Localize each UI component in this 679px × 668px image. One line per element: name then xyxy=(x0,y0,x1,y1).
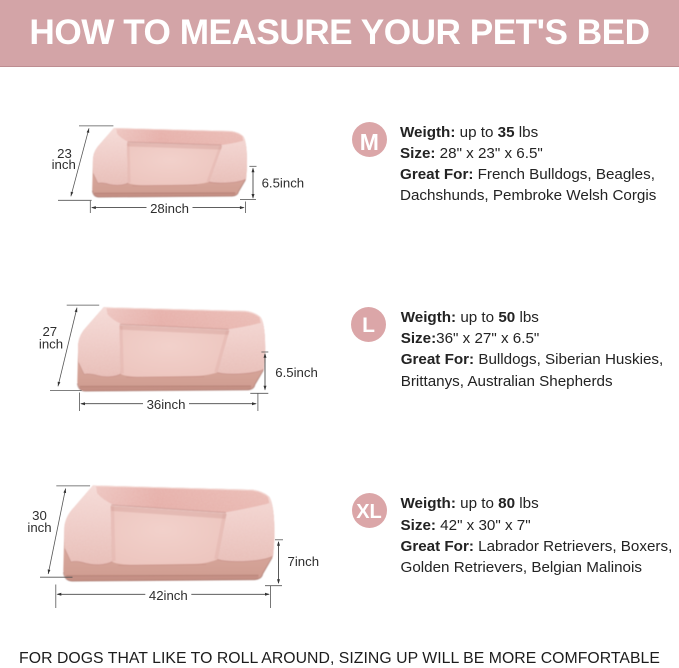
svg-text:inch: inch xyxy=(27,520,51,535)
svg-text:7inch: 7inch xyxy=(288,554,320,569)
svg-text:inch: inch xyxy=(52,157,76,172)
svg-text:28inch: 28inch xyxy=(150,201,189,216)
svg-text:inch: inch xyxy=(39,337,63,352)
svg-text:6.5inch: 6.5inch xyxy=(275,365,318,380)
svg-text:42inch: 42inch xyxy=(149,588,188,603)
svg-text:36inch: 36inch xyxy=(147,397,186,412)
svg-text:6.5inch: 6.5inch xyxy=(262,176,305,191)
